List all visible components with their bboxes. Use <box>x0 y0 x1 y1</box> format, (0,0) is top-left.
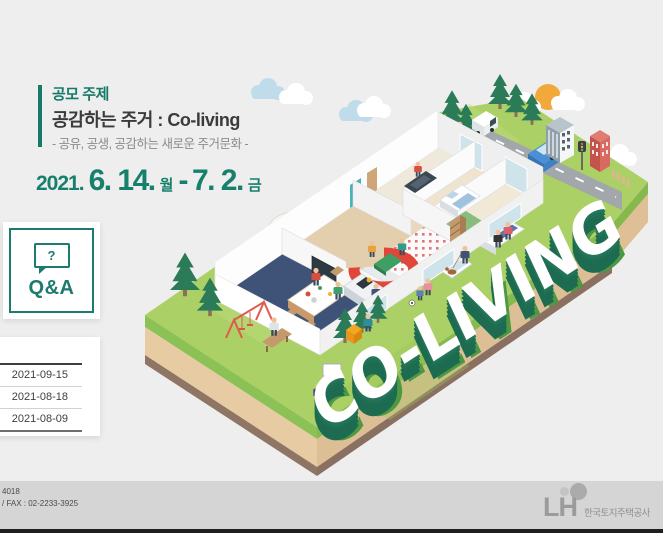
footer: 4018 / FAX : 02-2233-3925 LH 한국토지주택공사 <box>0 481 663 529</box>
accent-bar <box>38 85 42 147</box>
red-building <box>590 130 610 172</box>
notice-row[interactable]: 2021-08-18 <box>0 387 82 409</box>
footer-phone-fragment: 4018 <box>2 487 20 496</box>
contest-theme-label: 공모 주제 <box>52 83 109 104</box>
period-year: 2021. <box>36 172 84 196</box>
notice-list: 2021-09-15 2021-08-18 2021-08-09 <box>0 337 100 436</box>
contest-period: 2021. 6. 14. 월 - 7. 2. 금 <box>36 164 262 198</box>
period-end: 7. 2. <box>192 164 243 198</box>
office-building <box>546 117 574 163</box>
contest-title: 공감하는 주거 : Co-living <box>52 106 240 132</box>
qna-label: Q&A <box>11 277 92 300</box>
notice-date: 2021-08-09 <box>12 413 68 425</box>
period-start-day: 월 <box>160 174 174 195</box>
qna-border: ? Q&A <box>9 228 94 313</box>
qna-button[interactable]: ? Q&A <box>3 222 100 319</box>
lh-company-name: 한국토지주택공사 <box>584 505 650 519</box>
notice-row[interactable]: 2021-08-09 <box>0 409 82 430</box>
period-end-day: 금 <box>248 174 262 195</box>
contest-subtitle: - 공유, 공생, 공감하는 새로운 주거문화 - <box>52 133 248 152</box>
period-start: 6. 14. <box>89 164 155 198</box>
period-dash: - <box>178 164 187 198</box>
lh-logo: LH <box>543 492 577 523</box>
question-bubble-icon: ? <box>34 243 70 268</box>
notice-date: 2021-09-15 <box>12 369 68 381</box>
bubble-tail <box>39 266 48 274</box>
notice-row[interactable]: 2021-09-15 <box>0 365 82 387</box>
bottom-dark-strip <box>0 529 663 533</box>
footer-fax: / FAX : 02-2233-3925 <box>2 499 78 508</box>
notice-date: 2021-08-18 <box>12 391 68 403</box>
notice-table: 2021-09-15 2021-08-18 2021-08-09 <box>0 363 82 432</box>
question-mark: ? <box>48 248 56 263</box>
